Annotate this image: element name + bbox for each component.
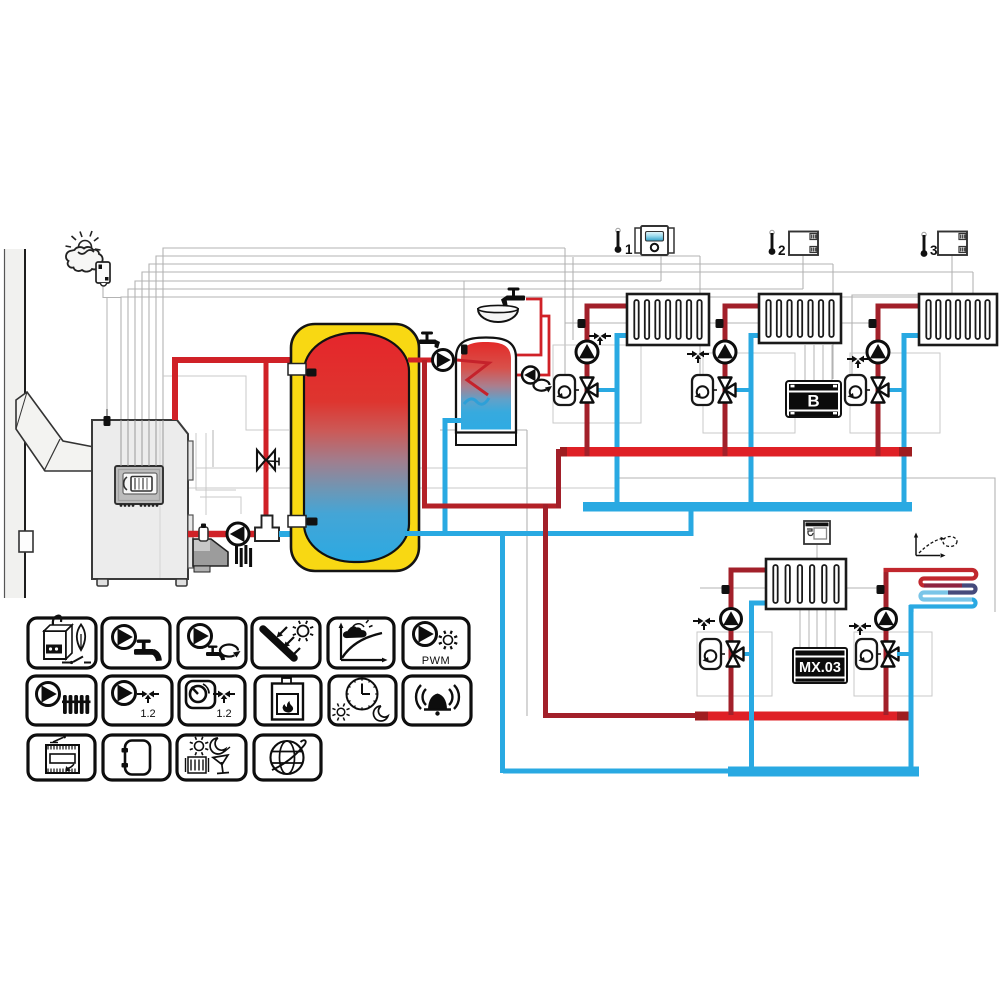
- svg-text:MX.03: MX.03: [799, 660, 841, 676]
- svg-text:3: 3: [930, 243, 938, 258]
- svg-text:B: B: [807, 392, 819, 411]
- svg-text:2: 2: [778, 243, 786, 258]
- svg-text:1.2: 1.2: [140, 708, 155, 720]
- svg-text:1: 1: [625, 242, 633, 257]
- svg-text:1.2: 1.2: [216, 708, 231, 720]
- svg-text:PWM: PWM: [422, 655, 450, 667]
